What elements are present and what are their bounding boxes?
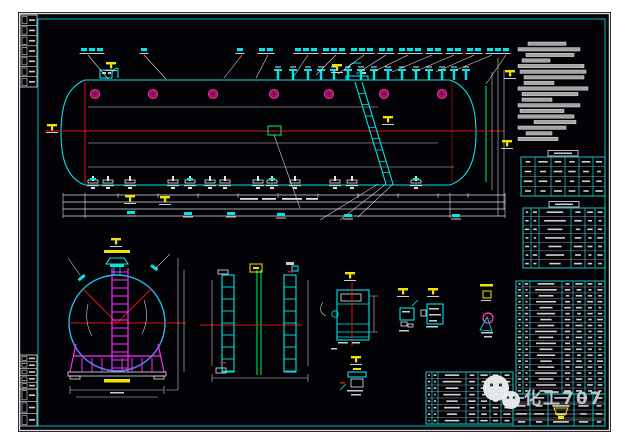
detail-d — [480, 284, 495, 338]
dimension-label — [343, 214, 353, 220]
bottom-fitting — [329, 176, 341, 189]
nozzle-label — [366, 48, 375, 54]
leader-line — [414, 55, 454, 72]
saddle-side-view — [200, 262, 308, 382]
bottom-fitting — [346, 176, 358, 189]
leader-line — [486, 55, 506, 84]
dimension-label — [183, 212, 193, 218]
dimension-text — [282, 198, 302, 200]
section-marker — [46, 124, 58, 133]
saddle-label-text — [104, 379, 130, 383]
nozzle-label — [434, 48, 443, 54]
bottom-fitting — [266, 176, 278, 189]
manhole-symbol — [437, 89, 446, 98]
nozzle-symbol — [462, 67, 470, 81]
section-marker — [350, 356, 362, 365]
dimension-text — [240, 198, 258, 200]
right-wear-plate — [284, 275, 296, 372]
inner-arcs — [87, 300, 147, 336]
nozzle-label — [486, 48, 495, 54]
nozzle-label — [350, 48, 359, 54]
outer-border — [20, 14, 610, 431]
nozzle-symbol — [384, 67, 392, 81]
internal-pipes — [88, 107, 454, 167]
dimensions — [212, 262, 308, 382]
left-head — [61, 80, 85, 185]
nozzle-label — [494, 48, 503, 54]
nozzle-label — [446, 48, 455, 54]
revision-strip-bottom-2 — [20, 389, 37, 426]
manhole-symbol — [324, 89, 333, 98]
left-wear-plate — [222, 275, 234, 372]
nozzle-label — [398, 48, 407, 54]
bottom-fitting — [204, 176, 216, 189]
nozzle-label — [302, 48, 311, 54]
nozzle-label — [322, 48, 331, 54]
right-table-2 — [523, 202, 605, 269]
nozzle-label — [466, 48, 475, 54]
nozzle-label — [502, 48, 511, 54]
section-marker — [110, 238, 122, 247]
nozzle-symbol — [317, 67, 325, 81]
nozzle-label — [406, 48, 415, 54]
nozzle-symbol — [398, 67, 406, 81]
section-marker — [382, 116, 394, 125]
section-marker — [504, 70, 516, 79]
nozzle-label — [378, 48, 387, 54]
nozzle-label — [426, 48, 435, 54]
revision-strip-top — [20, 15, 37, 87]
leader-line — [224, 55, 242, 78]
nozzle-symbol — [304, 67, 312, 81]
right-head — [450, 80, 476, 185]
notes-block — [518, 42, 588, 141]
bottom-fitting — [102, 176, 114, 189]
leader-line — [144, 55, 166, 79]
nozzle-label — [454, 48, 463, 54]
nozzle-label — [88, 48, 97, 54]
nozzle-symbol — [425, 67, 433, 81]
nozzle-label — [236, 48, 245, 54]
detail-a — [321, 282, 378, 350]
dimension-label — [226, 212, 236, 218]
dimension-label — [126, 211, 136, 217]
dimension-label — [451, 214, 461, 220]
section-marker — [159, 196, 171, 205]
nozzle-symbol — [274, 67, 282, 81]
nozzle-label — [414, 48, 423, 54]
bottom-fitting — [410, 176, 422, 189]
bottom-fitting — [252, 176, 264, 189]
nozzle-label — [358, 48, 367, 54]
manhole-symbol — [90, 89, 99, 98]
nozzle-label — [258, 48, 267, 54]
section-marker — [427, 288, 439, 297]
bottom-fitting — [124, 176, 136, 189]
elevation-view — [45, 58, 505, 220]
leader-line — [456, 55, 492, 70]
leader-line — [256, 55, 268, 78]
section-marker — [501, 140, 513, 149]
bottom-fitting — [167, 176, 179, 189]
section-marker — [344, 272, 356, 281]
hook-leader — [321, 302, 326, 316]
revision-strip-bottom-1 — [20, 355, 37, 389]
nozzle-label — [310, 48, 319, 54]
nozzle-label — [294, 48, 303, 54]
detail-b — [399, 300, 418, 332]
drawing-frame — [20, 14, 610, 431]
saddle — [68, 344, 166, 379]
leader-line — [88, 55, 108, 79]
manhole-symbol — [379, 89, 388, 98]
detail-e — [340, 368, 366, 396]
manhole-symbol — [208, 89, 217, 98]
dimension-text — [262, 198, 276, 200]
right-table-1 — [521, 151, 605, 197]
diagonal-centerlines — [83, 289, 151, 323]
right-dimension-lines — [492, 58, 504, 216]
manhole-symbol — [269, 89, 278, 98]
nozzle-label — [474, 48, 483, 54]
section-marker — [397, 288, 409, 297]
nozzle-symbol — [438, 67, 446, 81]
section-marker — [124, 195, 136, 204]
nozzle-label-text — [104, 250, 130, 253]
nozzle-label — [386, 48, 395, 54]
manhole-symbol — [148, 89, 157, 98]
view-label — [480, 284, 493, 287]
page: 化工707 — [0, 0, 632, 441]
leader-line — [294, 55, 308, 76]
nozzle-label — [80, 48, 89, 54]
bom-table — [516, 281, 605, 394]
detail-c — [421, 304, 443, 328]
cad-canvas: 化工707 — [18, 12, 611, 432]
nozzle-label — [338, 48, 347, 54]
nozzle-label — [330, 48, 339, 54]
dimension-label — [276, 213, 286, 219]
cad-drawing: 化工707 — [18, 12, 611, 432]
nozzle-symbol — [370, 67, 378, 81]
bottom-fitting — [184, 176, 196, 189]
bottom-fitting — [219, 176, 231, 189]
nozzle-label — [266, 48, 275, 54]
nozzle-label — [140, 48, 149, 54]
nozzle-label — [96, 48, 105, 54]
dimension-text — [306, 198, 318, 200]
view-label — [250, 264, 262, 272]
wechat-icon — [483, 375, 520, 409]
bottom-fitting — [87, 176, 99, 189]
watermark-text: 化工707 — [524, 388, 604, 409]
nozzle-symbol — [450, 67, 458, 81]
nozzle-symbol — [412, 67, 420, 81]
